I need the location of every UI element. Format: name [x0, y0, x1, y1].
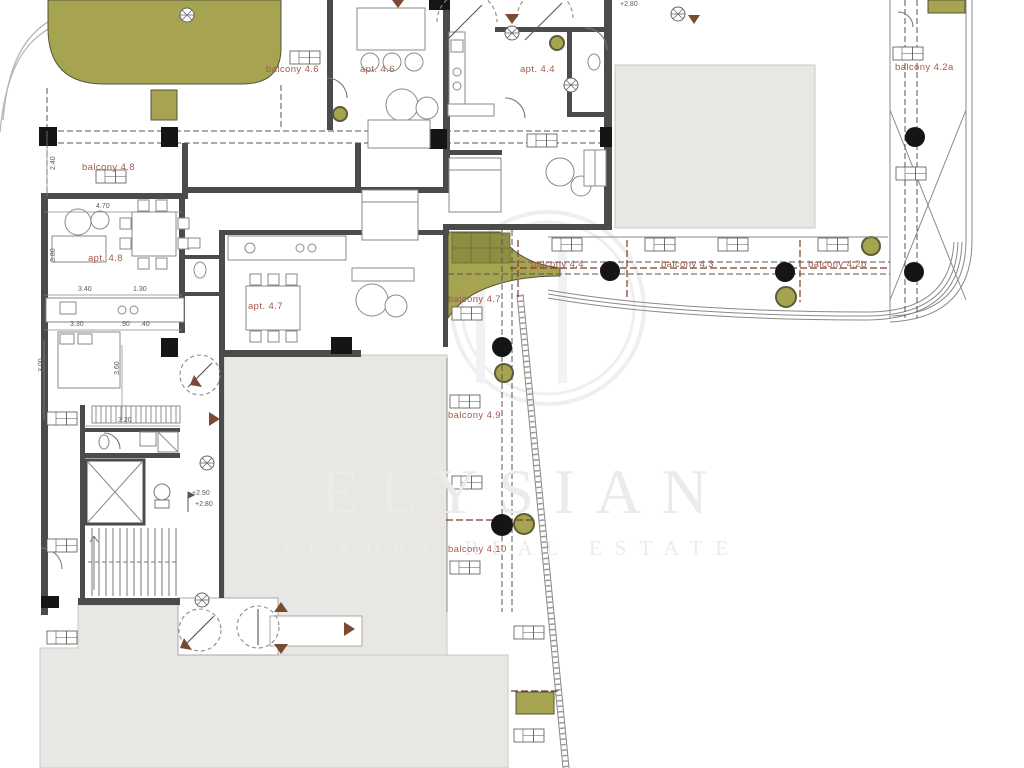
- dim-3-20: 3.20: [118, 417, 132, 424]
- label-balcony-4-2b: balcony 4.2b: [808, 259, 867, 270]
- label-apt-4-8: apt. 4.8: [88, 253, 123, 264]
- dim-4-70: 4.70: [96, 203, 110, 210]
- label-balcony-4-6: balcony 4.6: [266, 64, 319, 75]
- watermark-tagline: LUXURY REAL ESTATE: [283, 536, 741, 561]
- dim-3-00: 3.00: [38, 358, 45, 372]
- dim-3-60: 3.60: [114, 361, 121, 375]
- dim-2-40: 2.40: [50, 156, 57, 170]
- floor-plan-drawing: [0, 0, 1024, 768]
- label-apt-4-4: apt. 4.4: [520, 64, 555, 75]
- level-plus-2-80: +2.80: [195, 501, 213, 508]
- label-balcony-4-7: balcony 4.7: [448, 294, 501, 305]
- label-balcony-4-2a: balcony 4.2a: [895, 62, 954, 73]
- dim-90: .90: [120, 321, 130, 328]
- green-tiled-area: [452, 233, 510, 263]
- watermark-brand: ELYSIAN: [320, 455, 727, 529]
- floor-plan-page: ELYSIAN LUXURY REAL ESTATE apt. 4.6 apt.…: [0, 0, 1024, 768]
- laundry-hatch: [92, 406, 180, 423]
- label-balcony-4-4: balcony 4.4: [531, 259, 584, 270]
- elevator-shaft: [86, 460, 144, 524]
- wheelchair-icon: [154, 484, 170, 508]
- label-apt-4-6: apt. 4.6: [360, 64, 395, 75]
- dim-3-80: 3.80: [50, 248, 57, 262]
- dim-1-30: 1.30: [133, 286, 147, 293]
- label-balcony-4-3: balcony 4.3: [661, 259, 714, 270]
- stairs: [41, 528, 178, 596]
- label-balcony-4-9: balcony 4.9: [448, 410, 501, 421]
- dim-40: .40: [140, 321, 150, 328]
- level-plus-2-90: +2.90: [192, 490, 210, 497]
- label-apt-4-7: apt. 4.7: [248, 301, 283, 312]
- dim-3-40: 3.40: [78, 286, 92, 293]
- label-balcony-4-10: balcony 4.10: [448, 544, 507, 555]
- label-balcony-4-8: balcony 4.8: [82, 162, 135, 173]
- level-plus-2-80-top: +2.80: [620, 1, 638, 8]
- dim-3-30: 3.30: [70, 321, 84, 328]
